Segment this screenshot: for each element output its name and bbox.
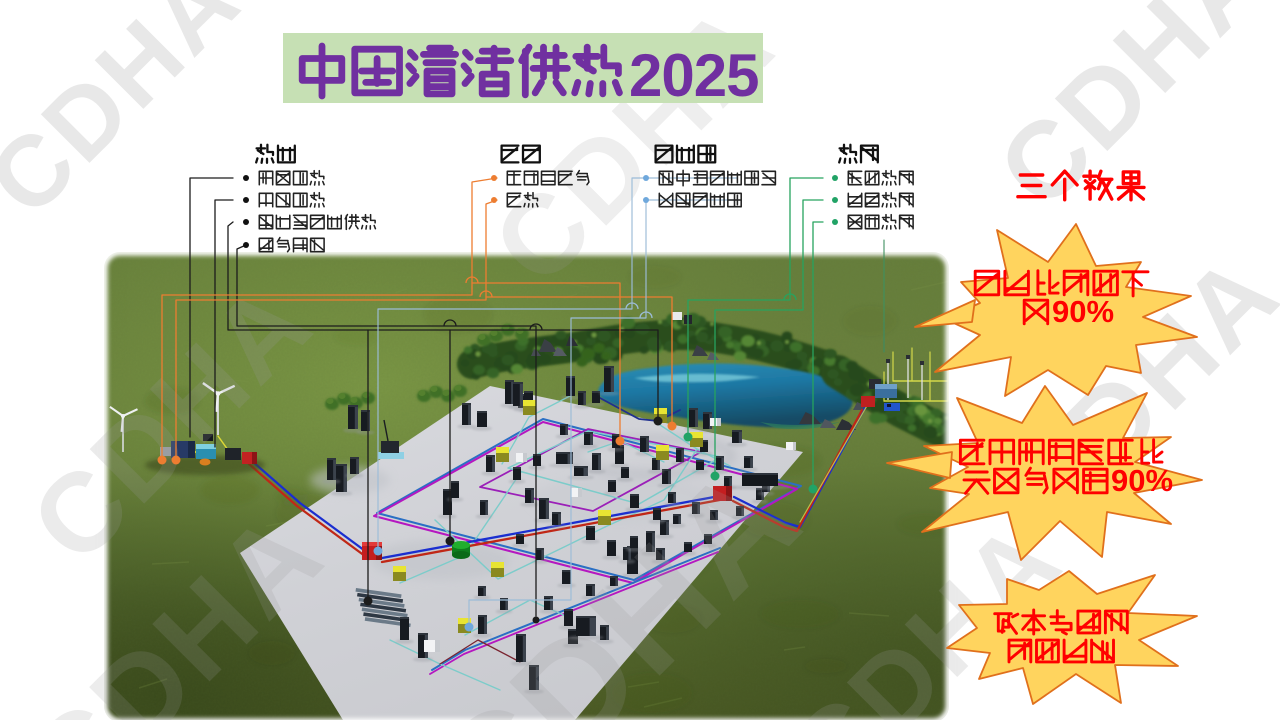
svg-text:CDHA: CDHA [0,0,262,237]
svg-text:2025: 2025 [629,42,758,109]
svg-text:90%: 90% [1111,463,1173,498]
svg-text:90%: 90% [1052,294,1114,329]
